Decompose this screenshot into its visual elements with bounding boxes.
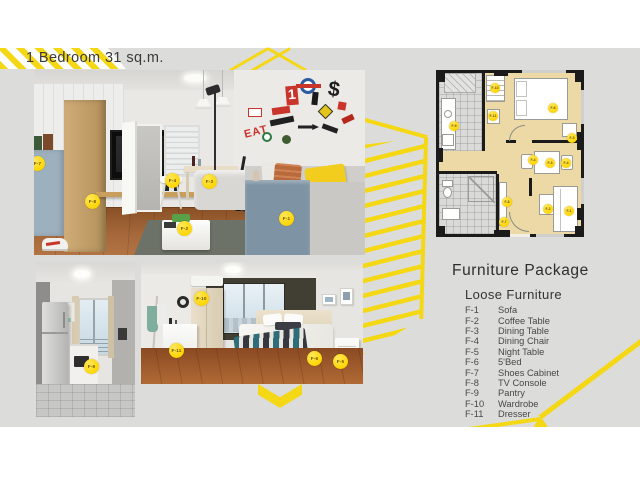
toilet	[443, 187, 452, 198]
kitchen-sink	[444, 110, 452, 118]
entrance-door-arc	[509, 212, 529, 232]
pillar	[494, 230, 510, 237]
marker-wardrobe: F-10	[194, 291, 209, 306]
lamp-cord	[222, 70, 223, 98]
air-conditioner	[191, 276, 223, 286]
balcony-hatch	[444, 73, 476, 93]
lamp-cord	[203, 70, 204, 100]
furniture-code: F-9	[465, 388, 498, 398]
fridge-handle	[63, 312, 65, 328]
furniture-name: Night Table	[498, 347, 544, 357]
brochure-page: 1 Bedroom 31 sq.m.	[0, 0, 640, 480]
refrigerator	[42, 302, 68, 388]
shower-glass	[469, 177, 495, 203]
loose-furniture-subheading: Loose Furniture	[465, 287, 562, 302]
figurine	[253, 170, 259, 181]
wall	[496, 174, 499, 234]
books	[34, 136, 42, 150]
furniture-list-item: F-5Night Table	[465, 347, 559, 357]
stove	[442, 134, 454, 146]
plan-marker-bed: F-6	[548, 103, 558, 113]
furniture-name: Dresser	[498, 409, 531, 419]
furniture-code: F-5	[465, 347, 498, 357]
books	[43, 134, 53, 150]
plan-marker-dresser: F-11	[488, 111, 498, 121]
furniture-code: F-6	[465, 357, 498, 367]
red-square-decal	[337, 101, 346, 110]
art	[343, 292, 350, 300]
plan-marker-dining-chair: F-4	[528, 155, 538, 165]
wall-decal-collage: $ 1 EAT	[242, 78, 362, 163]
furniture-name: Shoes Cabinet	[498, 368, 559, 378]
plan-marker-dining-table: F-3	[545, 158, 555, 168]
ceiling-light	[74, 270, 90, 278]
tall-wood-cabinet	[64, 100, 106, 252]
plan-window	[522, 70, 566, 73]
floor-plan: F-9 F-10 F-11 F-6 F-5 F-4 F-3 F-4 F-8 F-…	[436, 70, 584, 237]
pillar	[436, 148, 443, 162]
pillar	[575, 226, 584, 237]
wall-panel	[118, 328, 127, 340]
furniture-list-item: F-8TV Console	[465, 378, 559, 388]
furniture-list: F-1Sofa F-2Coffee Table F-3Dining Table …	[465, 305, 559, 419]
plan-marker-dining-chair: F-4	[561, 158, 571, 168]
marker-pantry: F-9	[84, 359, 99, 374]
open-door	[122, 121, 137, 215]
plan-window	[536, 234, 564, 237]
red-sign-decal	[272, 106, 291, 115]
furniture-name: Dining Table	[498, 326, 549, 336]
marker-tv-console: F-8	[85, 194, 100, 209]
sofa-chaise	[194, 170, 249, 210]
art	[325, 297, 333, 302]
plan-marker-pantry: F-9	[449, 121, 459, 131]
plan-marker-night-table: F-5	[567, 133, 577, 143]
glass	[198, 159, 201, 166]
plan-window	[581, 178, 584, 204]
furniture-code: F-8	[465, 378, 498, 388]
furniture-name: Sofa	[498, 305, 517, 315]
furniture-code: F-4	[465, 336, 498, 346]
furniture-name: Dining Chair	[498, 336, 549, 346]
plan-pillow	[516, 81, 527, 97]
wall	[529, 178, 532, 196]
pillar	[575, 70, 584, 82]
tile-floor	[36, 384, 135, 417]
furniture-list-item: F-65'Bed	[465, 357, 559, 367]
furniture-list-item: F-2Coffee Table	[465, 315, 559, 325]
dresser-vase	[169, 318, 172, 324]
plan-marker-tv-console: F-8	[502, 197, 512, 207]
sneaker	[42, 238, 68, 249]
living-room-photo: $ 1 EAT F-7 F-8 F-4 F-3 F-2 F-1	[34, 70, 365, 255]
furniture-list-item: F-7Shoes Cabinet	[465, 367, 559, 377]
plan-marker-shoes-cabinet: F-7	[499, 217, 509, 227]
marker-dining-table: F-3	[202, 174, 217, 189]
bedroom-door-arc	[509, 125, 525, 141]
bedroom-photo: F-10 F-11 F-6 F-5	[141, 262, 363, 384]
dresser-vase	[175, 320, 177, 324]
toilet-tank	[442, 180, 453, 187]
sneaker-stripe	[46, 241, 60, 246]
hanging-shirt	[157, 304, 166, 326]
kitchen-photo: F-9	[36, 262, 135, 417]
pillar	[494, 70, 508, 76]
furniture-code: F-11	[465, 409, 498, 419]
furniture-list-item: F-4Dining Chair	[465, 336, 559, 346]
drawer-line	[338, 346, 356, 347]
plan-marker-wardrobe: F-10	[490, 83, 500, 93]
furniture-list-item: F-9Pantry	[465, 388, 559, 398]
plan-marker-coffee-table: F-2	[543, 204, 553, 214]
marker-bed: F-6	[307, 351, 322, 366]
sofa-seat	[310, 182, 365, 255]
furniture-name: TV Console	[498, 378, 547, 388]
bath-sink	[442, 208, 460, 220]
marker-sofa: F-1	[279, 211, 294, 226]
furniture-code: F-7	[465, 368, 498, 378]
dollar-decal: $	[326, 77, 341, 102]
furniture-list-item: F-3Dining Table	[465, 326, 559, 336]
pillar	[436, 70, 445, 82]
plan-pillow	[516, 100, 527, 116]
furniture-name: Coffee Table	[498, 316, 550, 326]
wall	[482, 73, 485, 151]
ceiling-light	[225, 266, 241, 273]
green-roundel-decal	[262, 132, 272, 142]
furniture-code: F-10	[465, 399, 498, 409]
art-frame	[322, 294, 336, 305]
furniture-package-heading: Furniture Package	[452, 262, 589, 280]
fridge-door-split	[42, 332, 68, 334]
red-sign-decal	[341, 114, 354, 125]
marker-dresser: F-11	[169, 343, 184, 358]
black-sign-decal	[270, 116, 295, 127]
white-sign-decal	[248, 108, 262, 117]
wall-mirror	[177, 296, 189, 308]
furniture-name: 5'Bed	[498, 357, 522, 367]
counter-leg	[186, 172, 189, 200]
marker-coffee-table: F-2	[177, 221, 192, 236]
furniture-list-item: F-10Wardrobe	[465, 399, 559, 409]
black-tall-decal	[311, 92, 318, 106]
plan-window	[581, 90, 584, 124]
art-frame	[340, 288, 353, 305]
olive-circle-decal	[282, 135, 291, 144]
marker-night-table: F-5	[333, 354, 348, 369]
entrance-opening	[510, 234, 530, 237]
roundel-bar	[296, 84, 321, 88]
furniture-name: Wardrobe	[498, 399, 538, 409]
table-book	[164, 222, 176, 228]
pillar	[577, 132, 584, 150]
furniture-list-item: F-1Sofa	[465, 305, 559, 315]
arrow-decal	[298, 124, 319, 130]
shower	[468, 176, 494, 202]
marker-dining-chair: F-4	[165, 173, 180, 188]
furniture-code: F-2	[465, 316, 498, 326]
pillar	[577, 208, 584, 220]
one-decal: 1	[285, 86, 299, 106]
diamond-sign-decal	[318, 104, 334, 120]
furniture-code: F-3	[465, 326, 498, 336]
page-title: 1 Bedroom 31 sq.m.	[26, 50, 164, 66]
furniture-name: Pantry	[498, 388, 525, 398]
wine-bottle	[192, 156, 195, 166]
wall	[439, 171, 497, 174]
plan-marker-sofa: F-1	[564, 206, 574, 216]
sofa-side-panel	[245, 180, 310, 255]
black-sign-decal	[322, 123, 339, 133]
pillar	[436, 226, 445, 237]
curtain	[108, 296, 114, 358]
plan-bed	[514, 78, 568, 120]
furniture-code: F-1	[465, 305, 498, 315]
sofa-cushion-line	[560, 189, 561, 231]
furniture-list-item: F-11Dresser	[465, 409, 559, 419]
